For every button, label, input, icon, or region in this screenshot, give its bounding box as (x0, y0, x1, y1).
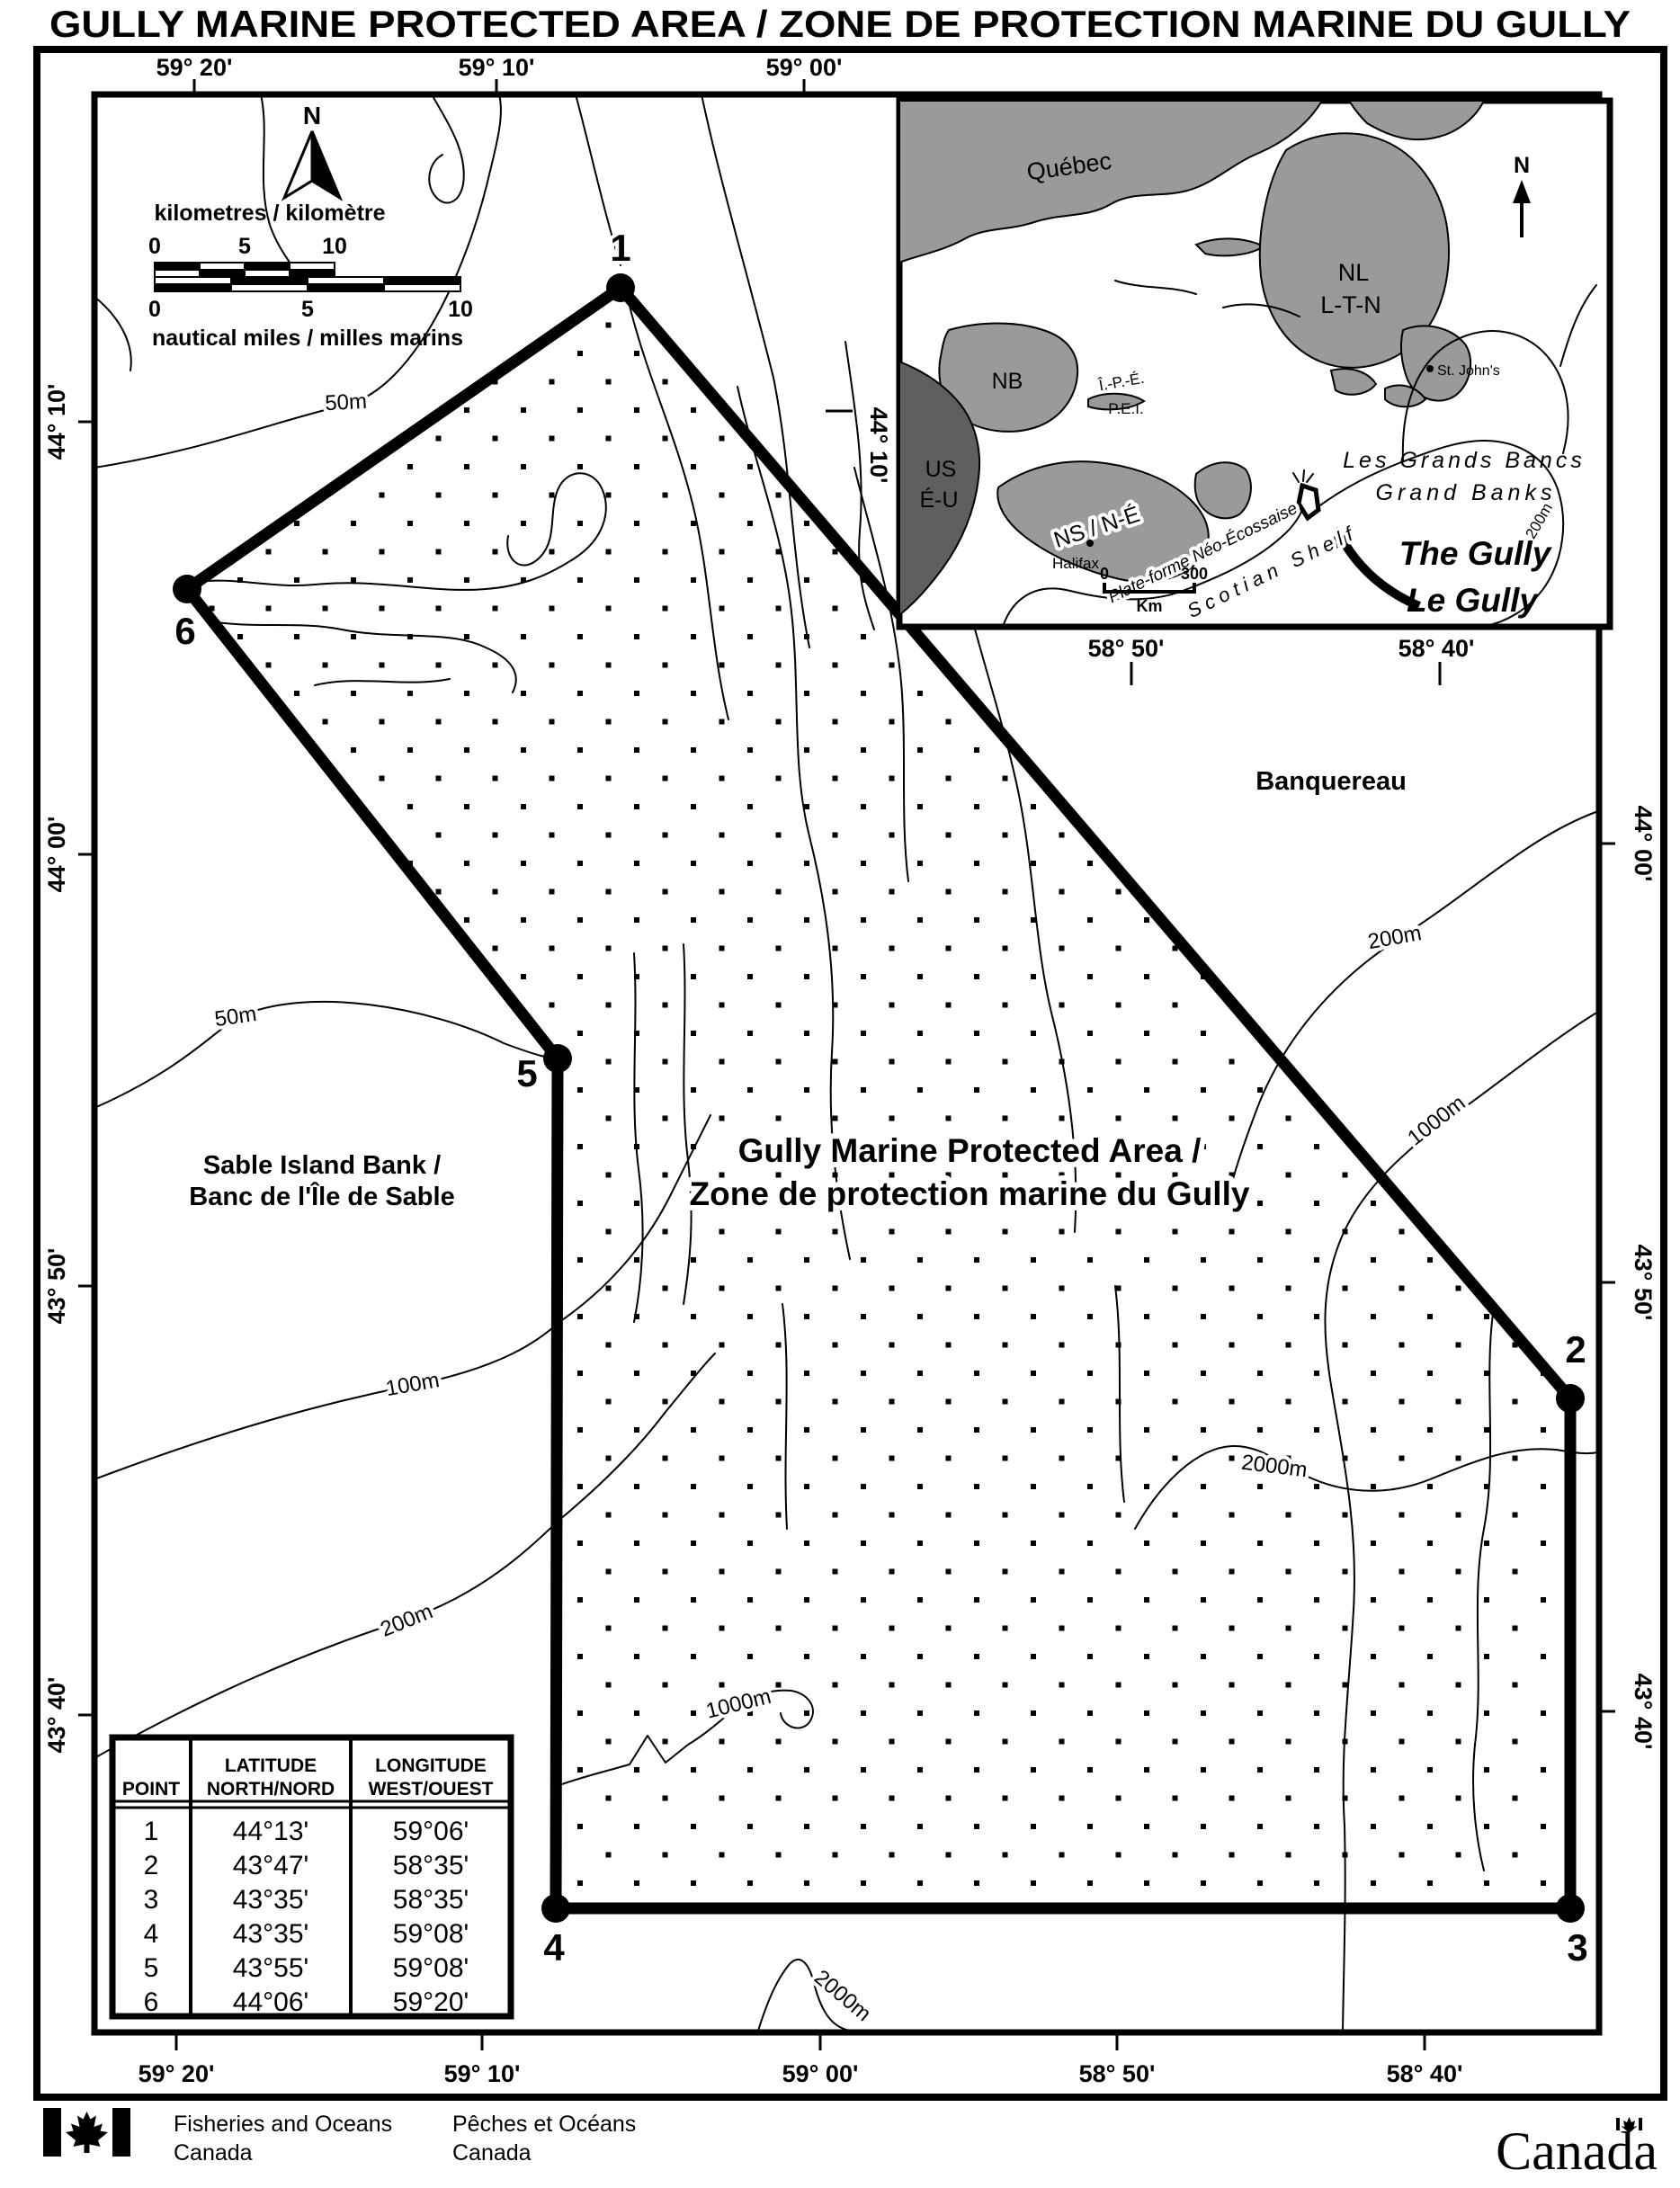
footer: Fisheries and Oceans Canada Pêches et Oc… (43, 2108, 1658, 2181)
inset-label-nb: NB (992, 369, 1023, 394)
table-header-lon2: WEST/OUEST (369, 1779, 494, 1800)
table-header-lon1: LONGITUDE (375, 1755, 487, 1776)
inset-scale-unit: Km (1136, 597, 1162, 615)
cell-lon: 59°08' (393, 1953, 469, 1983)
lat-label-left: 43° 40' (43, 1677, 70, 1754)
cell-lon: 58°35' (393, 1851, 469, 1880)
table-header-point: POINT (122, 1779, 180, 1800)
scalebar-km-title: kilometres / kilomètre (154, 201, 385, 226)
lon-label-top: 59° 00' (766, 54, 843, 81)
scalebar-km-tick: 0 (148, 234, 161, 259)
inset-st-johns-dot (1426, 365, 1434, 372)
contour-label-2000m: 2000m (809, 1965, 876, 2026)
north-arrow-icon (312, 131, 340, 198)
inset-scale-max: 300 (1181, 565, 1208, 583)
vertex-6 (173, 575, 201, 603)
cell-lon: 58°35' (393, 1885, 469, 1915)
scalebar-nm-tick: 10 (448, 297, 473, 322)
inset-label-gully-en: The Gully (1399, 535, 1553, 572)
cell-lon: 59°08' (393, 1919, 469, 1949)
cell-lat: 43°35' (233, 1885, 308, 1915)
cell-point: 3 (144, 1885, 159, 1915)
inset-label-gully-fr: Le Gully (1407, 582, 1540, 619)
lon-label-top: 59° 20' (156, 54, 233, 81)
inset-north-label: N (1514, 153, 1530, 178)
vertex-label-1: 1 (610, 227, 630, 269)
vertex-label-3: 3 (1567, 1926, 1587, 1969)
cell-lat: 43°35' (233, 1919, 308, 1949)
footer-dept-en-line2: Canada (174, 2140, 253, 2166)
lat-label-left: 44° 00' (43, 817, 70, 893)
inset-label-us-fr: É-U (919, 487, 958, 513)
lon-label-bottom: 59° 20' (139, 2060, 215, 2087)
cell-lat: 43°47' (233, 1851, 308, 1880)
vertex-3 (1556, 1894, 1585, 1923)
contour-label-50m: 50m (325, 389, 368, 415)
inset-label-pei-en: P.E.I. (1108, 400, 1143, 417)
contour-line (94, 297, 131, 371)
inset-label-grand-banks-en: Grand Banks (1376, 480, 1557, 505)
lon-label-displaced: 58° 40' (1399, 635, 1475, 662)
map-sheet: GULLY MARINE PROTECTED AREA / ZONE DE PR… (0, 0, 1680, 2188)
scalebar-nm-title: nautical miles / milles marins (152, 326, 463, 351)
scalebar-km-tick: 5 (238, 234, 251, 259)
scalebar-nm-bar (155, 277, 460, 291)
cell-lat: 44°06' (233, 1987, 308, 2017)
sable-island-label-line1: Sable Island Bank / (203, 1151, 441, 1180)
contour-line (261, 94, 306, 288)
cell-point: 4 (144, 1919, 159, 1949)
inset-label-us: US (925, 457, 957, 482)
scalebar-nm-tick: 5 (301, 297, 314, 322)
inset-locator-map: Québec NB Î.-P.-É. P.E.I. US É-U NS / N-… (899, 101, 1610, 627)
fisheries-oceans-flag-icon (43, 2108, 130, 2157)
table-header-lat2: NORTH/NORD (207, 1779, 335, 1800)
lat-label-left: 44° 10' (43, 384, 70, 460)
mpa-area-label-line1: Gully Marine Protected Area / (738, 1132, 1202, 1169)
inset-land-cape-breton (1195, 462, 1251, 518)
footer-dept-en-line1: Fisheries and Oceans (174, 2112, 392, 2137)
inset-label-nl: NL (1338, 259, 1370, 286)
lat-label-left: 43° 50' (43, 1248, 70, 1325)
inset-label-st-johns: St. John's (1437, 363, 1500, 379)
north-arrow-icon (284, 131, 312, 198)
vertex-5 (543, 1044, 572, 1073)
lon-label-top: 59° 10' (459, 54, 535, 81)
banquereau-label: Banquereau (1256, 767, 1407, 796)
lon-label-bottom: 58° 50' (1079, 2060, 1156, 2087)
scalebar-km-tick: 10 (322, 234, 347, 259)
footer-dept-fr-line1: Pêches et Océans (452, 2112, 636, 2137)
inset-label-grand-banks-fr: Les Grands Bancs (1343, 448, 1586, 473)
vertex-1 (606, 273, 635, 302)
contour-line (429, 94, 463, 203)
north-arrow-label: N (303, 102, 321, 129)
cell-lon: 59°06' (393, 1817, 469, 1846)
gully-mpa-map: GULLY MARINE PROTECTED AREA / ZONE DE PR… (0, 0, 1680, 2188)
lat-label-displaced: 44° 10' (865, 407, 892, 484)
contour-label-1000m: 1000m (1403, 1091, 1470, 1150)
lat-label-right: 43° 50' (1630, 1245, 1657, 1321)
vertex-2 (1556, 1384, 1585, 1413)
canada-wordmark: Canada (1496, 2121, 1658, 2181)
inset-label-nl-fr: L-T-N (1320, 291, 1381, 318)
contour-label-200m: 200m (1366, 921, 1424, 954)
lon-label-displaced: 58° 50' (1088, 635, 1165, 662)
vertex-label-6: 6 (174, 610, 195, 652)
vertex-4 (541, 1894, 570, 1923)
footer-dept-fr-line2: Canada (452, 2140, 532, 2166)
cell-point: 6 (144, 1987, 159, 2017)
inset-label-halifax: Halifax (1052, 555, 1099, 572)
vertex-label-5: 5 (516, 1052, 537, 1094)
lon-label-bottom: 59° 10' (444, 2060, 521, 2087)
lon-label-bottom: 58° 40' (1387, 2060, 1463, 2087)
lat-label-right: 43° 40' (1630, 1674, 1657, 1750)
sable-island-label-line2: Banc de l'Île de Sable (189, 1181, 454, 1211)
cell-point: 1 (144, 1817, 159, 1846)
contour-label-200m: 200m (377, 1599, 436, 1642)
cell-lat: 43°55' (233, 1953, 308, 1983)
scale-bars: kilometres / kilomètre 0 5 10 0 5 10 nau… (148, 201, 473, 351)
north-arrow: N (284, 102, 340, 198)
contour-label-100m: 100m (384, 1368, 442, 1401)
coordinate-table: POINT LATITUDE NORTH/NORD LONGITUDE WEST… (112, 1737, 511, 2017)
cell-lon: 59°20' (393, 1987, 469, 2017)
contour-label-50m: 50m (213, 1002, 258, 1031)
lat-label-right: 44° 00' (1630, 806, 1657, 882)
cell-lat: 44°13' (233, 1817, 308, 1846)
table-header-lat1: LATITUDE (225, 1755, 317, 1776)
scalebar-km-bar (155, 263, 335, 277)
inset-halifax-dot (1086, 540, 1094, 547)
cell-point: 2 (144, 1851, 159, 1880)
page-title: GULLY MARINE PROTECTED AREA / ZONE DE PR… (49, 3, 1631, 45)
scalebar-nm-tick: 0 (148, 297, 161, 322)
vertex-label-2: 2 (1565, 1328, 1586, 1371)
inset-scale-zero: 0 (1100, 565, 1109, 583)
mpa-area-label-line2: Zone de protection marine du Gully (690, 1175, 1250, 1212)
vertex-label-4: 4 (543, 1926, 565, 1969)
cell-point: 5 (144, 1953, 159, 1983)
lon-label-bottom: 59° 00' (782, 2060, 859, 2087)
contour-50m-mid (94, 1002, 558, 1108)
